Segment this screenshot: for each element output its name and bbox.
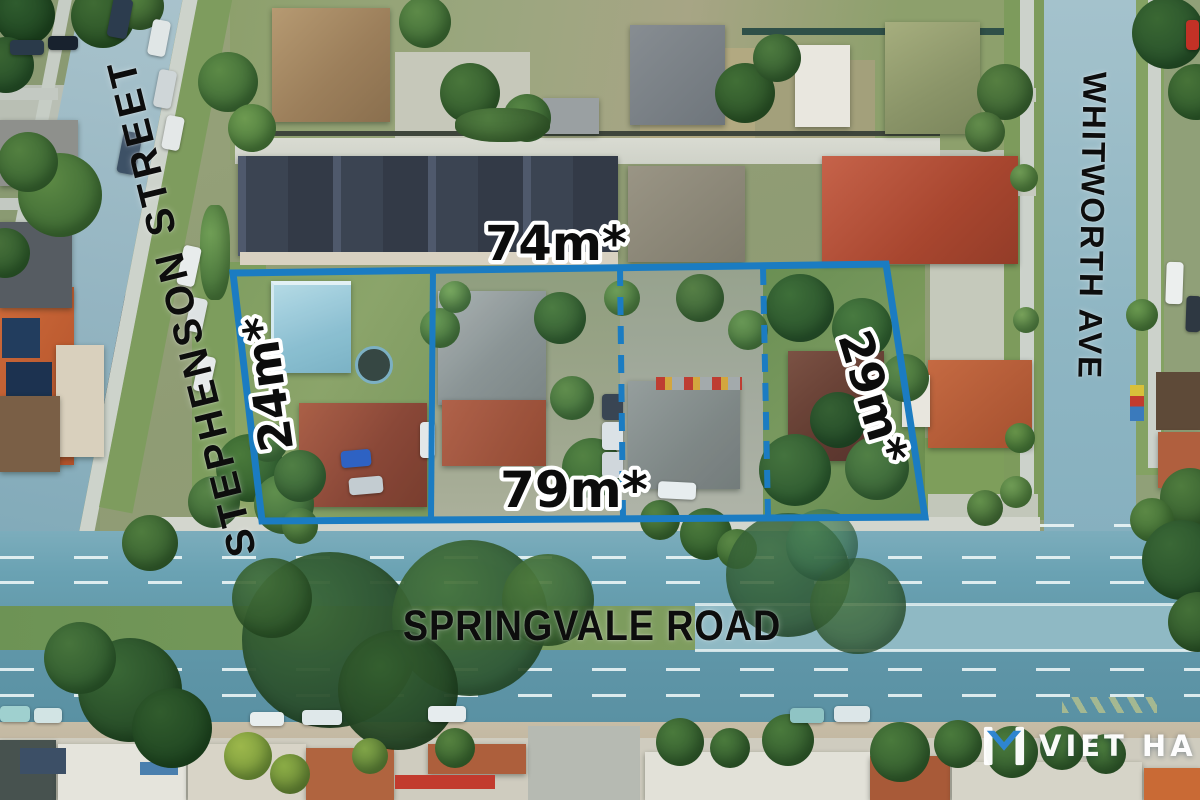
watermark-text: VIET HA <box>1039 729 1197 763</box>
dimension-top: 74m* <box>485 216 627 272</box>
aerial-photo: 74m* 79m* 24m* 29m* STEPHENSON STREET WH… <box>0 0 1200 800</box>
viet-ha-logo-icon <box>982 724 1026 768</box>
label-springvale-road: SPRINGVALE ROAD <box>328 602 856 651</box>
site-annotation-overlay: 74m* 79m* 24m* 29m* <box>0 0 1200 800</box>
watermark-viet-ha: VIET HA <box>982 724 1197 768</box>
lot-divider-solid <box>431 270 433 518</box>
label-whitworth-ave: WHITWORTH AVE <box>1070 26 1115 427</box>
dimension-bottom: 79m* <box>500 461 648 519</box>
